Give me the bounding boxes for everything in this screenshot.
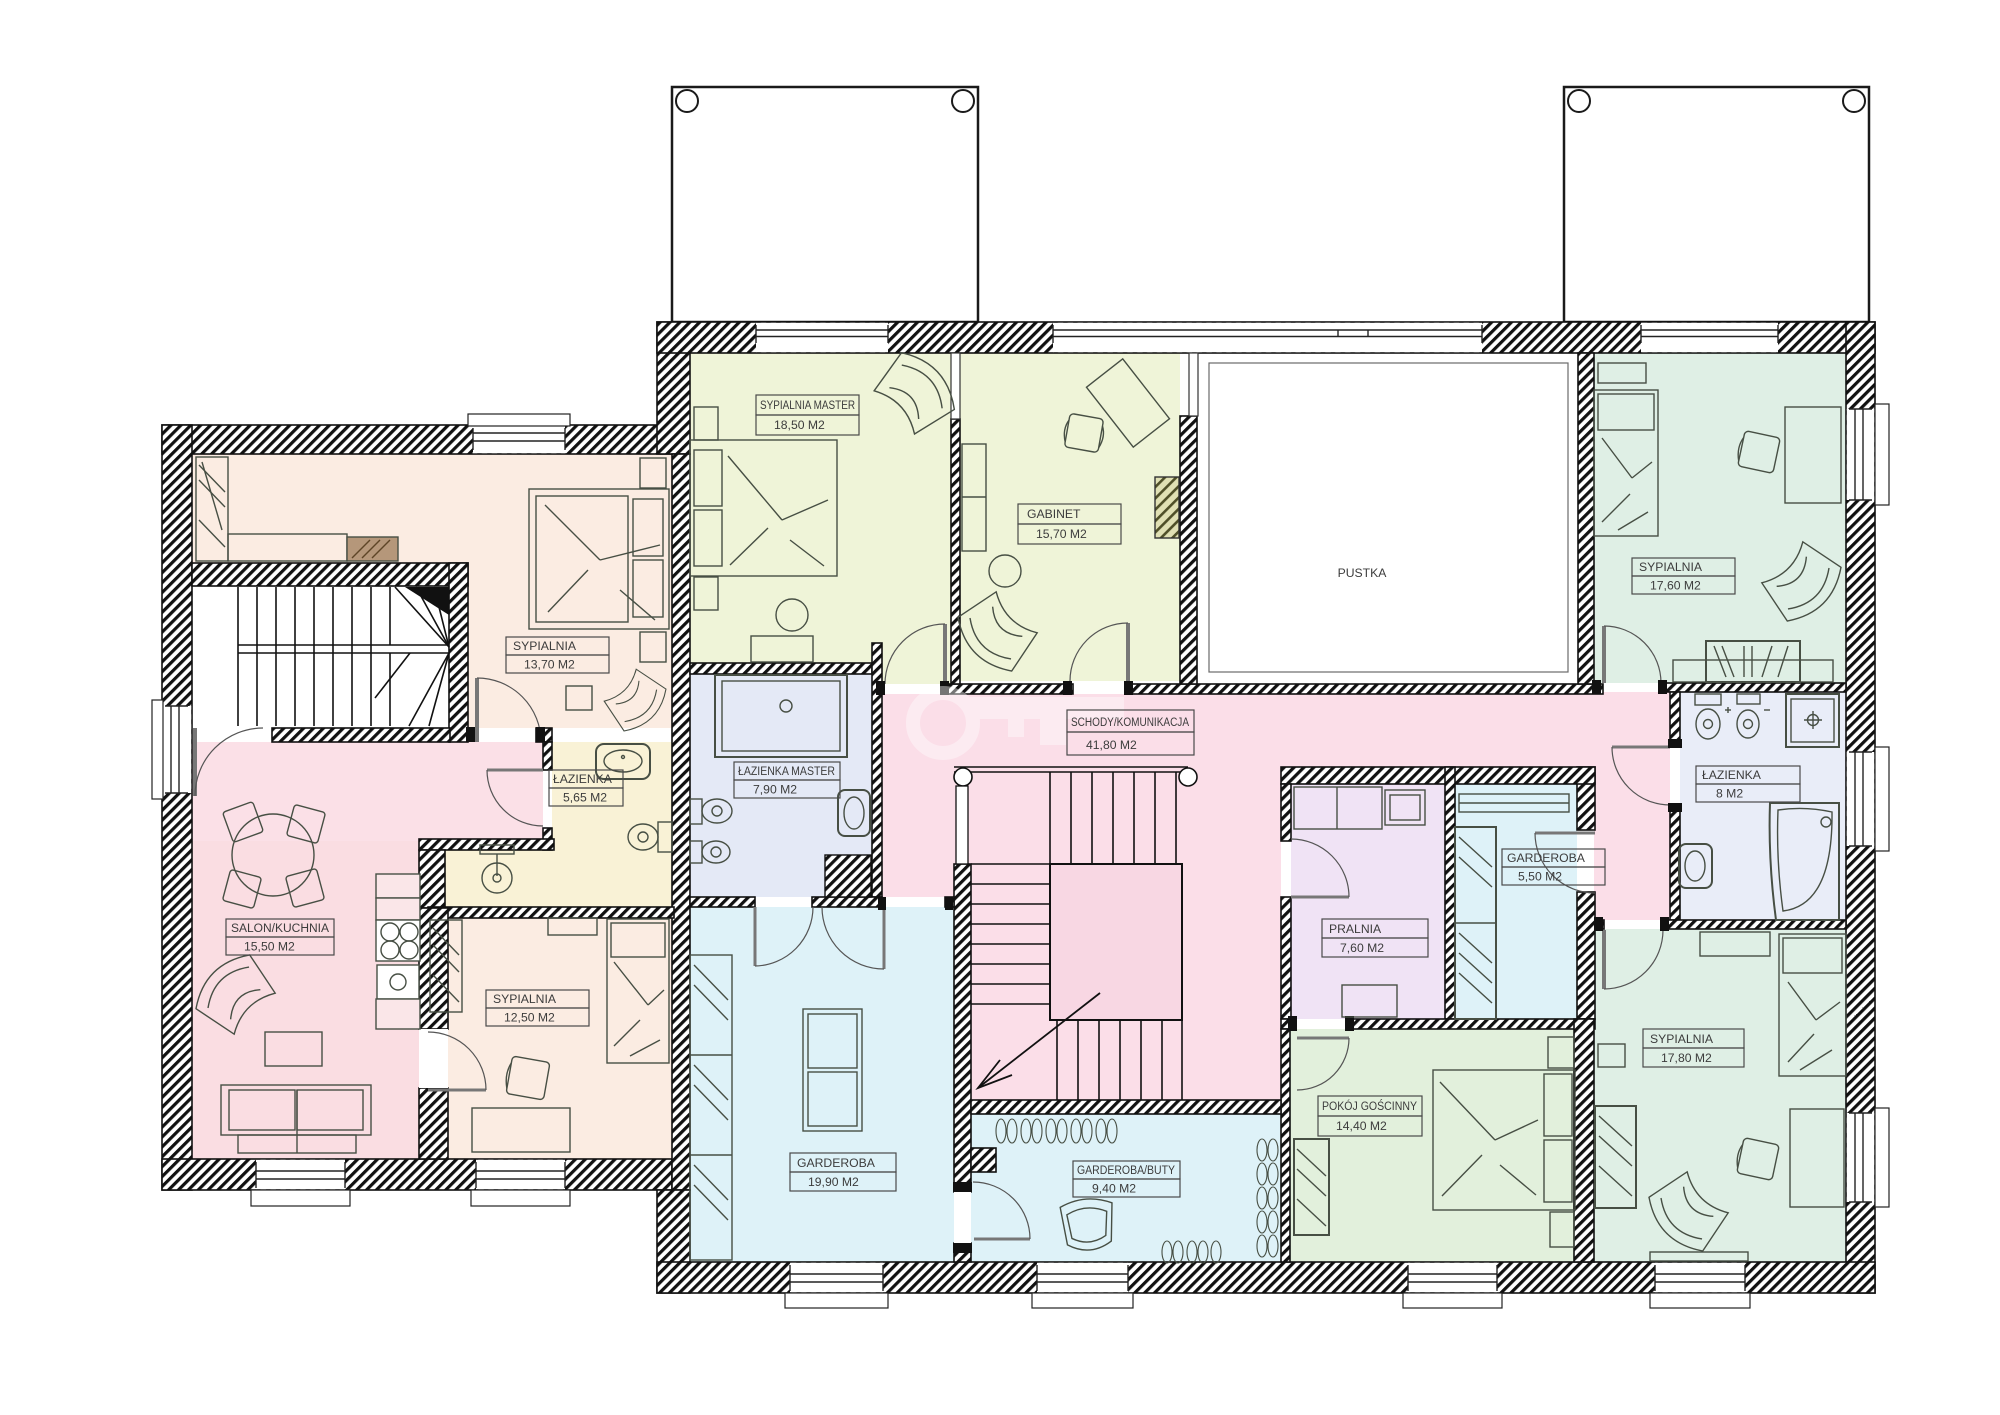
svg-text:GABINET: GABINET xyxy=(1027,507,1081,521)
svg-text:PRALNIA: PRALNIA xyxy=(1329,922,1382,936)
svg-text:18,50 M2: 18,50 M2 xyxy=(774,418,825,432)
svg-text:SYPIALNIA: SYPIALNIA xyxy=(493,992,557,1006)
svg-text:9,40 M2: 9,40 M2 xyxy=(1092,1182,1136,1196)
svg-text:ŁAZIENKA: ŁAZIENKA xyxy=(553,772,613,786)
svg-text:12,50 M2: 12,50 M2 xyxy=(504,1011,555,1025)
svg-text:7,60 M2: 7,60 M2 xyxy=(1340,941,1384,955)
svg-text:19,90 M2: 19,90 M2 xyxy=(808,1175,859,1189)
svg-text:PUSTKA: PUSTKA xyxy=(1338,566,1388,580)
svg-text:GARDEROBA/BUTY: GARDEROBA/BUTY xyxy=(1077,1163,1175,1177)
svg-text:17,60 M2: 17,60 M2 xyxy=(1650,579,1701,593)
svg-text:SYPIALNIA: SYPIALNIA xyxy=(1650,1032,1714,1046)
svg-text:14,40 M2: 14,40 M2 xyxy=(1336,1119,1387,1133)
svg-text:13,70 M2: 13,70 M2 xyxy=(524,658,575,672)
svg-text:41,80 M2: 41,80 M2 xyxy=(1086,738,1137,752)
svg-text:GARDEROBA: GARDEROBA xyxy=(797,1156,876,1170)
svg-text:SYPIALNIA: SYPIALNIA xyxy=(1639,560,1703,574)
svg-text:ŁAZIENKA MASTER: ŁAZIENKA MASTER xyxy=(738,764,835,778)
svg-text:8 M2: 8 M2 xyxy=(1716,787,1743,801)
svg-text:SYPIALNIA MASTER: SYPIALNIA MASTER xyxy=(760,398,855,412)
svg-text:SYPIALNIA: SYPIALNIA xyxy=(513,639,577,653)
svg-text:7,90 M2: 7,90 M2 xyxy=(753,783,797,797)
svg-text:GARDEROBA: GARDEROBA xyxy=(1507,851,1586,865)
svg-text:17,80 M2: 17,80 M2 xyxy=(1661,1051,1712,1065)
svg-text:ŁAZIENKA: ŁAZIENKA xyxy=(1702,768,1762,782)
svg-text:SALON/KUCHNIA: SALON/KUCHNIA xyxy=(231,921,330,935)
svg-text:5,50 M2: 5,50 M2 xyxy=(1518,870,1562,884)
svg-text:SCHODY/KOMUNIKACJA: SCHODY/KOMUNIKACJA xyxy=(1071,715,1190,729)
svg-text:POKÓJ GOŚCINNY: POKÓJ GOŚCINNY xyxy=(1322,1098,1417,1113)
svg-text:15,70 M2: 15,70 M2 xyxy=(1036,527,1087,541)
svg-text:15,50 M2: 15,50 M2 xyxy=(244,940,295,954)
svg-text:5,65 M2: 5,65 M2 xyxy=(563,791,607,805)
